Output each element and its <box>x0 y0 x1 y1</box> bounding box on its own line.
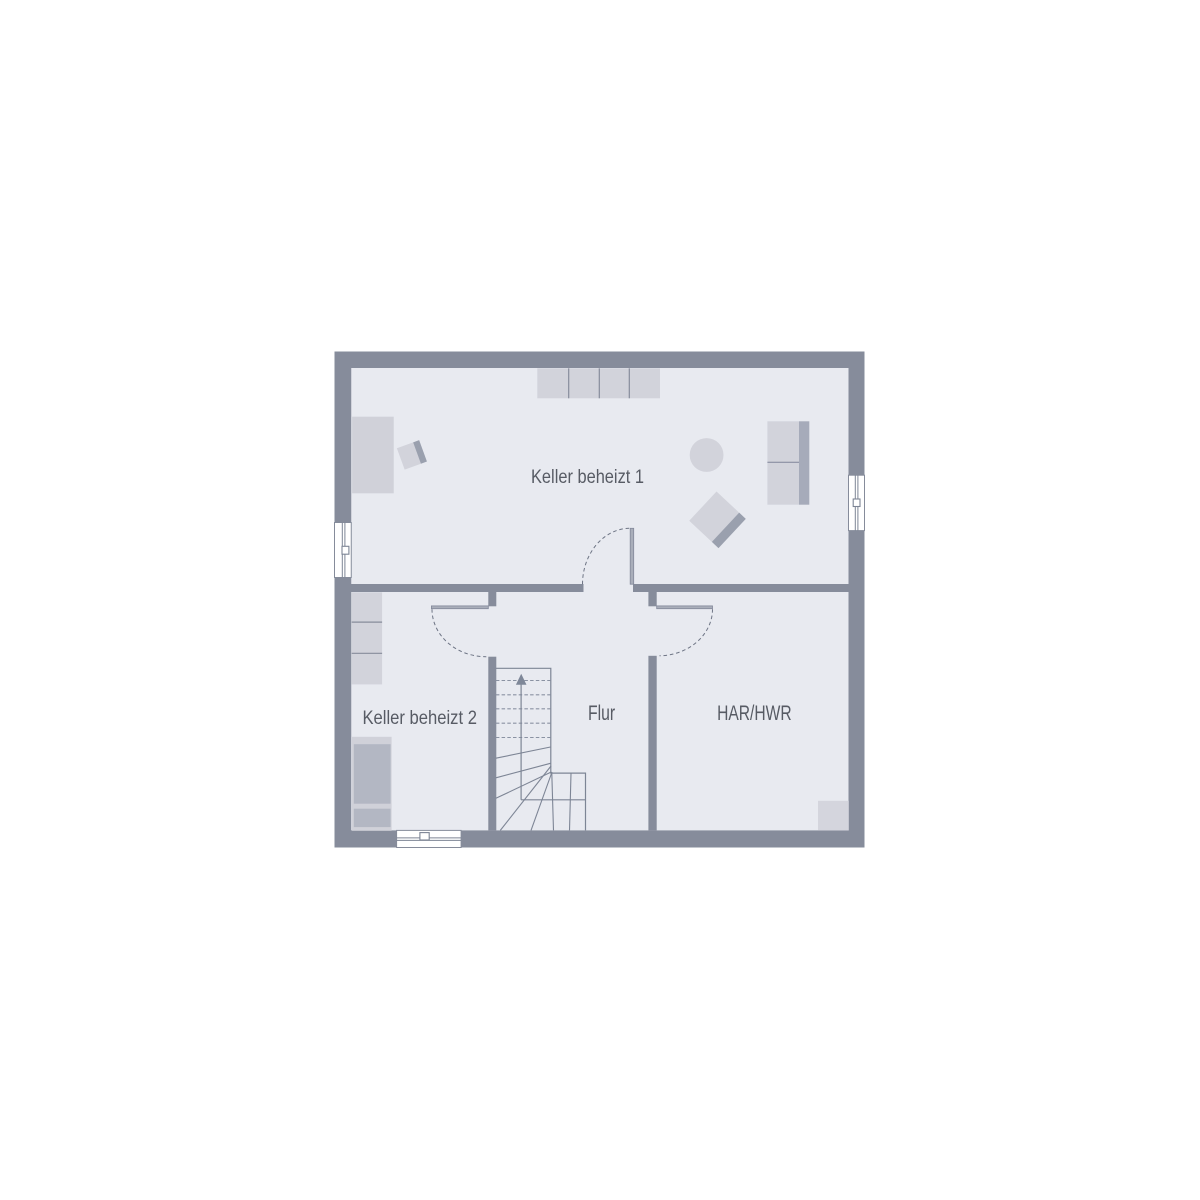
svg-text:Keller beheizt 1: Keller beheizt 1 <box>531 467 644 488</box>
svg-text:Flur: Flur <box>588 702 615 725</box>
svg-text:HAR/HWR: HAR/HWR <box>717 702 792 725</box>
svg-text:Keller beheizt 2: Keller beheizt 2 <box>362 708 477 729</box>
